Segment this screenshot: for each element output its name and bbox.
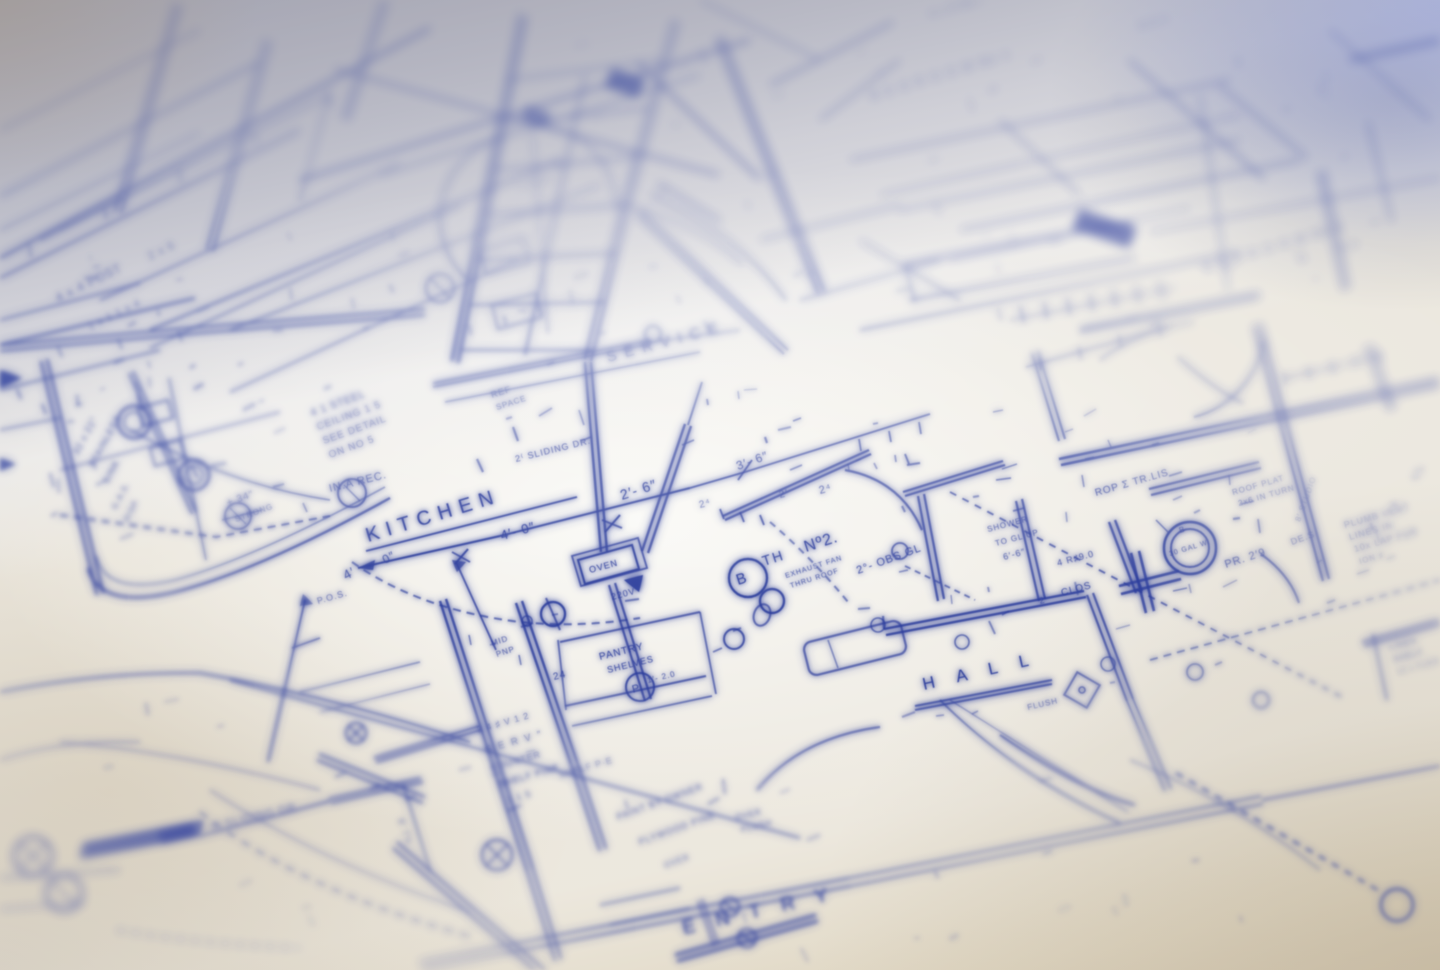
svg-text:0″: 0″ [380, 548, 398, 566]
svg-text:Nº2.: Nº2. [802, 529, 840, 556]
svg-text:DISP.: DISP. [122, 497, 142, 523]
svg-text:30 GAL W: 30 GAL W [1169, 540, 1209, 558]
svg-text:2⁴: 2⁴ [818, 482, 834, 497]
svg-text:B E D R O O M No 2: B E D R O O M No 2 [1202, 219, 1346, 275]
svg-text:2°- OBS GL: 2°- OBS GL [855, 542, 923, 577]
svg-text:ION ♯: ION ♯ [1358, 550, 1385, 566]
svg-text:4′: 4′ [340, 564, 357, 583]
svg-text:K I T C H E N: K I T C H E N [363, 487, 497, 547]
svg-text:2′- 6″: 2′- 6″ [618, 476, 659, 503]
svg-text:B: B [1178, 524, 1187, 534]
svg-text:8′ SLIDING DR: 8′ SLIDING DR [210, 802, 298, 833]
svg-text:+ 34″: + 34″ [225, 489, 255, 509]
svg-text:B: B [734, 569, 750, 589]
svg-text:OVER: OVER [734, 807, 762, 822]
svg-text:FLUSH: FLUSH [740, 818, 772, 834]
svg-text:1 1 5: 1 1 5 [506, 788, 533, 805]
svg-text:24: 24 [552, 669, 567, 683]
svg-text:R D 2: R D 2 [1138, 13, 1170, 32]
svg-text:P.O.S.: P.O.S. [316, 588, 349, 606]
svg-text:PLYWOOD PINE: PLYWOOD PINE [637, 810, 716, 847]
svg-text:FLUSH: FLUSH [1026, 696, 1058, 712]
svg-text:OVEN: OVEN [588, 558, 619, 575]
svg-text:OVER: OVER [663, 852, 691, 870]
svg-text:SHELF P·E: SHELF P·E [558, 755, 614, 780]
svg-text:2⁴: 2⁴ [698, 497, 712, 511]
svg-text:4 x 4 POST: 4 x 4 POST [53, 261, 124, 305]
svg-text:2′: 2′ [778, 488, 790, 501]
svg-text:4′- 0″: 4′- 0″ [499, 519, 537, 543]
svg-text:H A L L: H A L L [921, 649, 1039, 694]
svg-text:8′ 7½: 8′ 7½ [396, 817, 415, 846]
svg-text:2 x 6: 2 x 6 [146, 239, 177, 262]
svg-text:B E D R O O M No 1: B E D R O O M No 1 [869, 47, 1013, 103]
svg-text:1 x 1 1 x 4: 1 x 1 1 x 4 [86, 298, 142, 333]
svg-text:PR. 2′9: PR. 2′9 [1223, 546, 1267, 571]
svg-text:2⁽ SLIDING DR.: 2⁽ SLIDING DR. [514, 435, 592, 464]
svg-text:4 x 8 BEAM: 4 x 8 BEAM [927, 0, 996, 21]
svg-text:TH: TH [760, 547, 787, 569]
svg-text:PNP: PNP [495, 644, 516, 659]
svg-text:6′-6″: 6′-6″ [1002, 546, 1027, 562]
svg-text:PAINT BY OWNER: PAINT BY OWNER [615, 781, 704, 822]
